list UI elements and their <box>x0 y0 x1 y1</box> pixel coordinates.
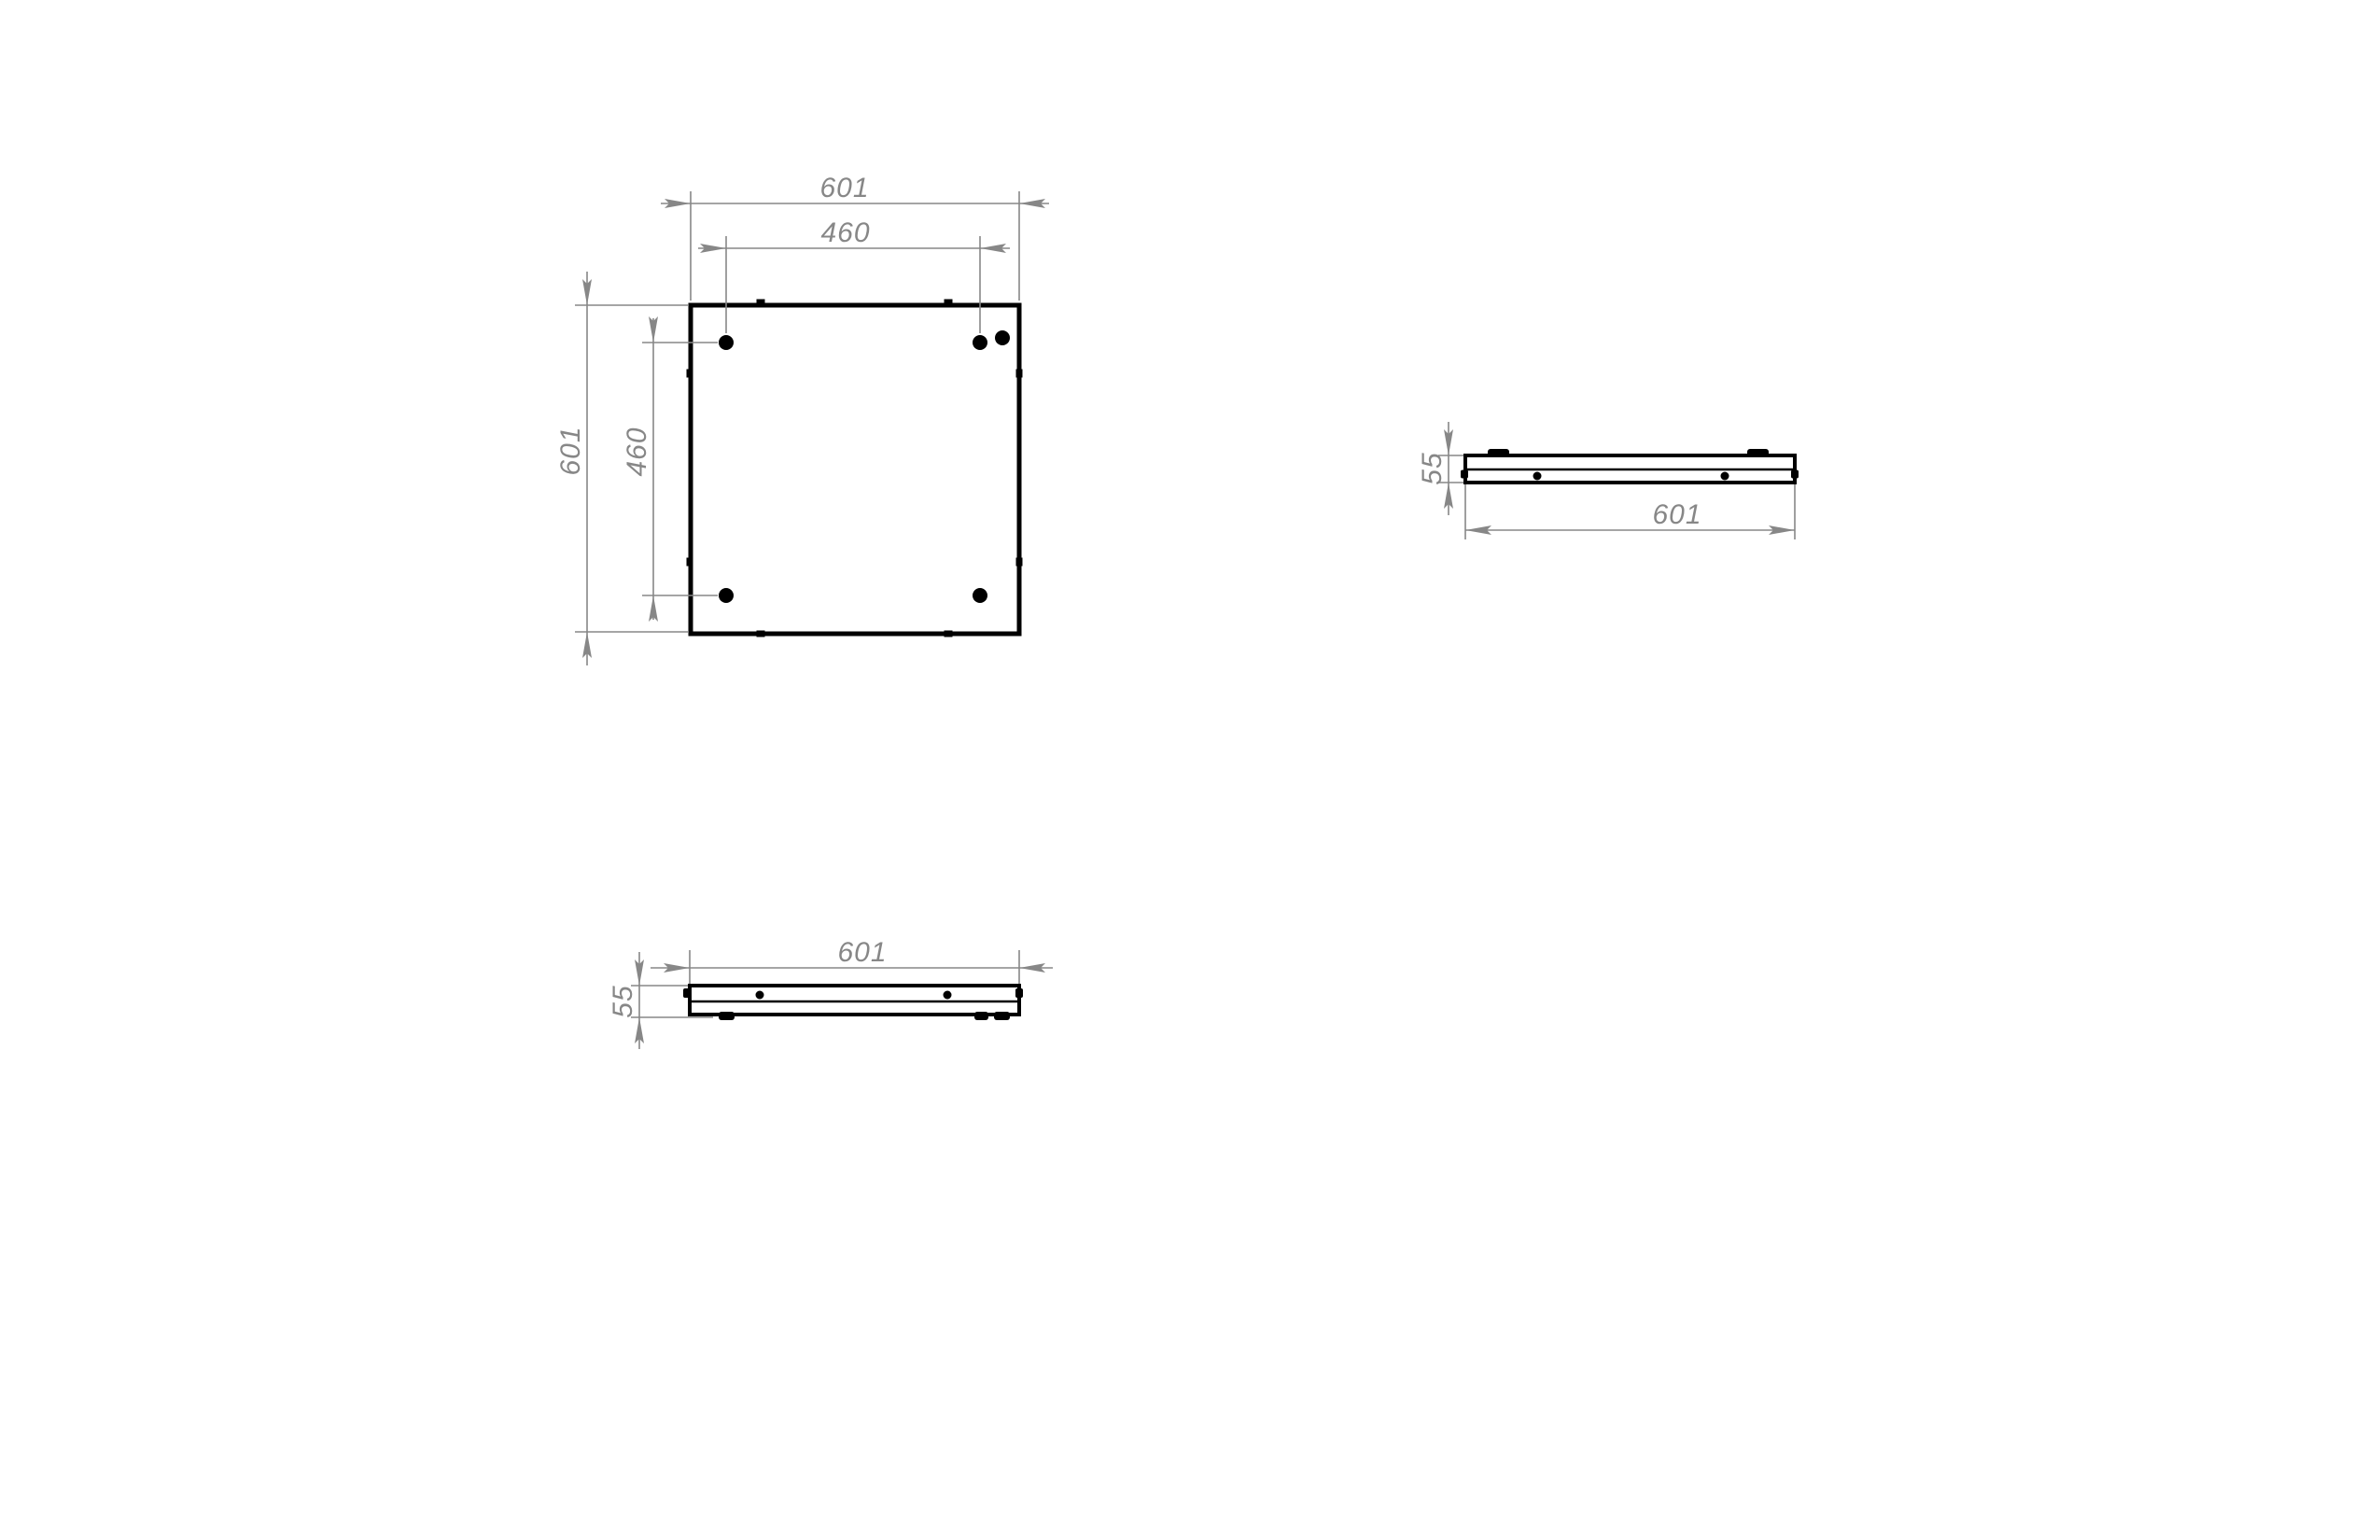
screw-dot-right <box>1721 472 1729 481</box>
edge-tick-left-upper <box>687 370 693 378</box>
dim-side-right-thickness: 55 <box>1417 422 1463 515</box>
dimension-label: 55 <box>1417 452 1448 484</box>
dim-plan-holes-height: 460 <box>622 316 718 622</box>
edge-tick-left-lower <box>687 558 693 567</box>
hole-top-left <box>719 335 734 350</box>
dimension-label: 55 <box>608 985 638 1017</box>
edge-tick-bottom-right <box>945 631 953 637</box>
dimension-label: 601 <box>555 426 586 475</box>
edge-tick-right-upper <box>1016 370 1023 378</box>
side-view-right: 55 601 <box>1417 422 1799 539</box>
dimension-label: 601 <box>837 937 887 968</box>
dimension-label: 460 <box>820 217 870 248</box>
edge-tick-right-lower <box>1016 558 1023 567</box>
dimension-label: 460 <box>622 427 652 476</box>
screw-dot-left <box>756 991 764 1000</box>
drawing-sheet: 601 460 601 460 <box>0 0 2380 1540</box>
technical-drawing-canvas: 601 460 601 460 <box>0 0 2380 1540</box>
dimension-label: 601 <box>1652 499 1701 530</box>
screw-dot-right <box>944 991 952 1000</box>
edge-tick-top-left <box>757 300 765 306</box>
hole-top-right-extra <box>995 330 1010 345</box>
plan-view: 601 460 601 460 <box>555 173 1049 665</box>
hole-top-right <box>973 335 987 350</box>
edge-tick-bottom-left <box>757 631 765 637</box>
hole-bottom-right <box>973 588 987 603</box>
side-view-bottom: 601 55 <box>608 937 1053 1049</box>
plan-panel-outline <box>691 305 1019 634</box>
hole-bottom-left <box>719 588 734 603</box>
dim-plan-holes-width: 460 <box>698 217 1010 333</box>
side-bottom-panel-outline <box>690 986 1019 1015</box>
screw-dot-left <box>1533 472 1542 481</box>
dimension-label: 601 <box>819 173 869 203</box>
dim-side-bottom-width: 601 <box>651 937 1053 984</box>
dim-side-right-width: 601 <box>1465 484 1795 539</box>
edge-tick-top-right <box>945 300 953 306</box>
